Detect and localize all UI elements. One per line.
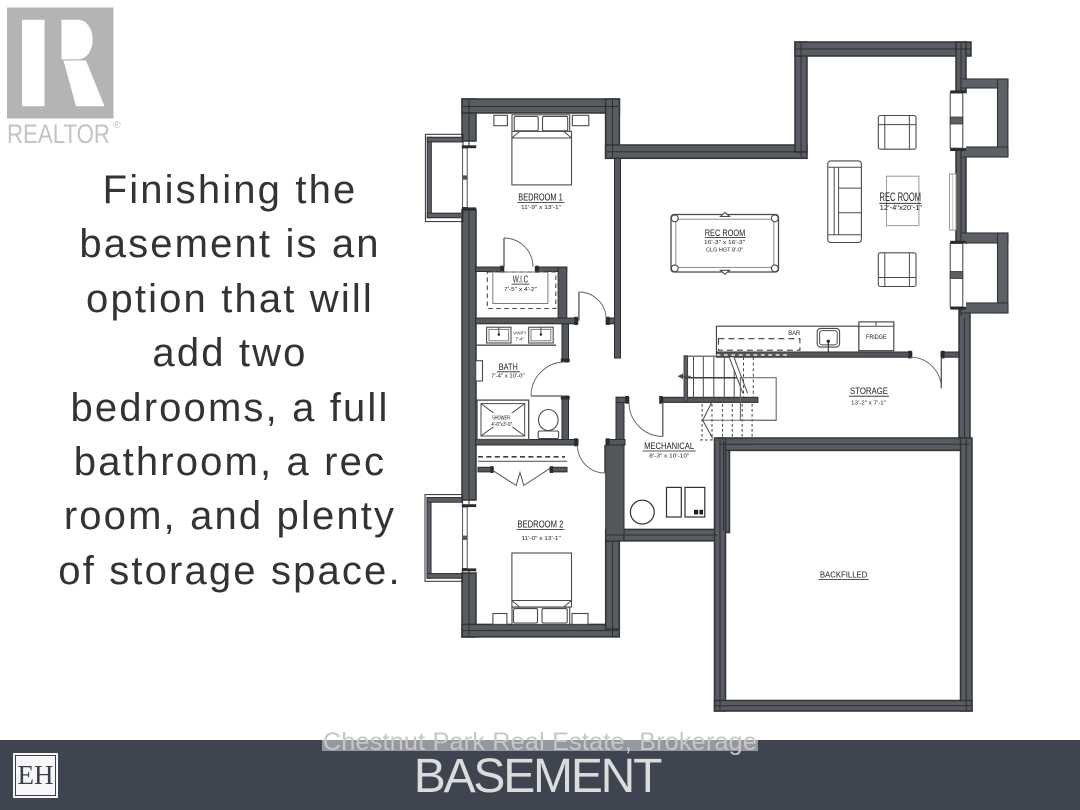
svg-text:12'-4"x20'-1": 12'-4"x20'-1"	[880, 205, 923, 212]
svg-text:BEDROOM 2: BEDROOM 2	[517, 520, 563, 531]
svg-text:8'-3" x 10'-10": 8'-3" x 10'-10"	[649, 453, 689, 459]
svg-text:SHOWER: SHOWER	[492, 416, 510, 422]
svg-text:7'-5" x 4'-2": 7'-5" x 4'-2"	[504, 287, 537, 293]
svg-text:W.I.C: W.I.C	[513, 274, 529, 285]
svg-text:REC ROOM: REC ROOM	[880, 192, 922, 204]
svg-text:BEDROOM 1: BEDROOM 1	[518, 193, 563, 204]
svg-text:11'-0" x 13'-1": 11'-0" x 13'-1"	[521, 536, 560, 542]
svg-text:MECHANICAL: MECHANICAL	[644, 441, 694, 451]
svg-text:FRIDGE: FRIDGE	[866, 334, 887, 341]
svg-text:VANITY: VANITY	[513, 331, 527, 337]
svg-text:13'-2" x 7'-1": 13'-2" x 7'-1"	[851, 401, 886, 407]
svg-text:BAR: BAR	[788, 330, 800, 337]
svg-text:11'-9" x 13'-1": 11'-9" x 13'-1"	[521, 205, 561, 211]
svg-text:7'-4": 7'-4"	[516, 337, 525, 343]
svg-text:CLG HGT 8'-0": CLG HGT 8'-0"	[706, 247, 743, 253]
svg-text:BACKFILLED: BACKFILLED	[820, 570, 868, 580]
svg-text:7'-4" x 10'-0": 7'-4" x 10'-0"	[491, 373, 524, 379]
svg-text:STORAGE: STORAGE	[850, 386, 888, 396]
svg-text:REC ROOM: REC ROOM	[705, 228, 746, 238]
svg-text:4'-0"x3'-0": 4'-0"x3'-0"	[491, 422, 512, 428]
svg-text:16'-3" x 16'-3": 16'-3" x 16'-3"	[704, 240, 745, 246]
